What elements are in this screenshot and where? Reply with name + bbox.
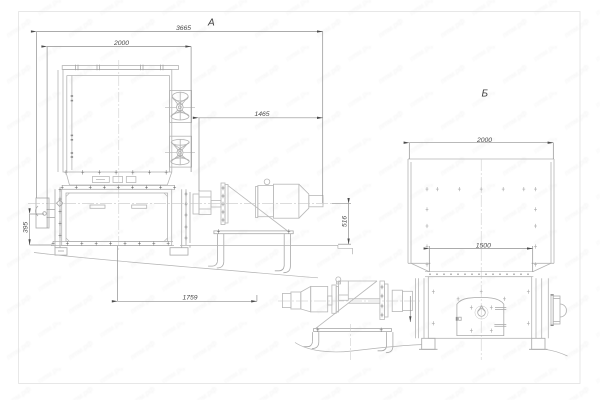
- svg-text:2000: 2000: [476, 137, 492, 144]
- svg-text:1500: 1500: [476, 243, 491, 250]
- svg-text:395: 395: [23, 222, 30, 234]
- svg-text:Б: Б: [482, 89, 489, 100]
- svg-text:1465: 1465: [254, 111, 269, 118]
- svg-text:516: 516: [342, 216, 349, 228]
- svg-text:3665: 3665: [176, 25, 191, 32]
- svg-text:А: А: [207, 18, 215, 29]
- svg-text:1759: 1759: [182, 295, 197, 302]
- svg-text:2000: 2000: [113, 40, 129, 47]
